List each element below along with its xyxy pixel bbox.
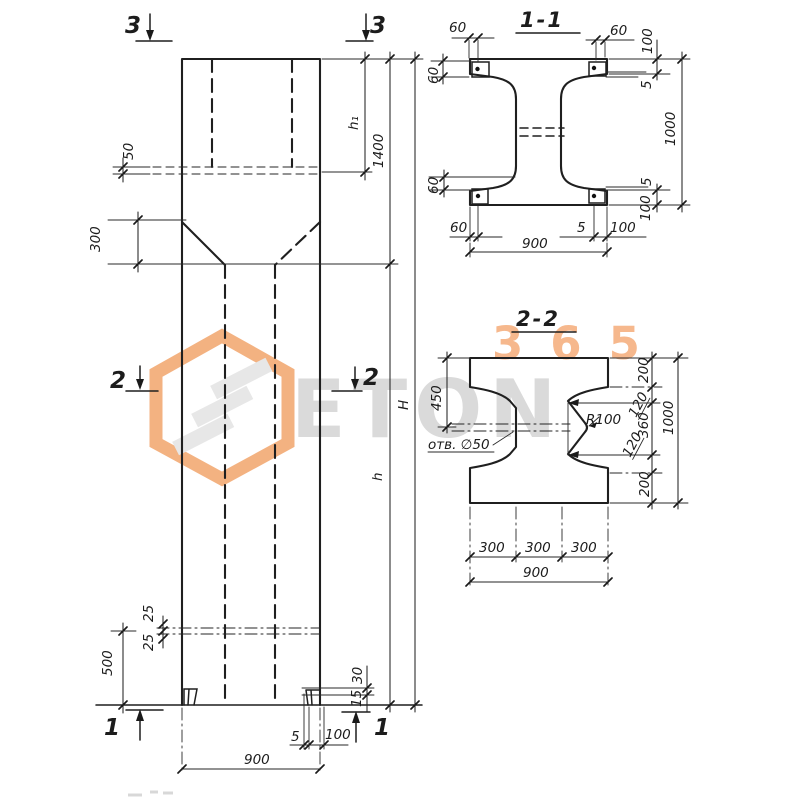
section-1-1-view: 1-1 60 60 100 5 1000 5 100 60 60 60 5 10… (426, 8, 690, 257)
watermark-hexagon-logo (156, 336, 288, 479)
s2-dim-200-bottom: 200 (637, 471, 653, 497)
dim-label-100: 100 (325, 727, 351, 743)
dim-label-25-upper: 25 (141, 605, 157, 622)
s1-dim-1000: 1000 (663, 112, 679, 146)
dim-label-500: 500 (100, 650, 116, 676)
s1-dim-900: 900 (522, 236, 548, 252)
s1-dim-5-top: 5 (639, 80, 655, 89)
svg-text:2: 2 (363, 365, 379, 391)
s2-hole-label: отв. ∅50 (428, 437, 490, 453)
svg-text:1: 1 (374, 715, 390, 741)
dim-label-15: 15 (349, 690, 365, 707)
s2-dim-1000: 1000 (661, 401, 677, 435)
s1-dim-60-left-bottom: 60 (426, 177, 442, 194)
dim-label-5: 5 (291, 729, 300, 745)
s2-dim-200-top: 200 (636, 357, 652, 383)
dim-label-h1: h₁ (346, 116, 362, 130)
dim-label-h: h (370, 472, 386, 481)
s2-radius-label: R100 (586, 412, 621, 428)
section-marker-3-right: 3 (346, 13, 386, 41)
dim-label-30: 30 (350, 667, 366, 684)
s1-dim-5-bottom: 5 (639, 177, 655, 186)
dim-label-50: 50 (121, 143, 137, 160)
section-marker-1-left: 1 (104, 709, 163, 741)
technical-drawing: ETON 365 50 300 h₁ 1400 H h 25 25 500 30… (0, 0, 800, 800)
s2-dim-900: 900 (523, 565, 549, 581)
s1-dim-60-left-top: 60 (426, 67, 442, 84)
s2-dim-450: 450 (429, 385, 445, 411)
s1-dim-60-bottom: 60 (450, 220, 467, 236)
s1-dim-100-bottom-edge: 100 (610, 220, 636, 236)
svg-text:3: 3 (370, 13, 386, 39)
dim-label-300: 300 (88, 226, 104, 252)
dim-label-1400: 1400 (371, 134, 387, 168)
s2-dim-300-b: 300 (525, 540, 551, 556)
svg-text:3: 3 (125, 13, 141, 39)
s2-dim-300-c: 300 (571, 540, 597, 556)
svg-text:2: 2 (110, 368, 126, 394)
s1-dim-60-top-left: 60 (449, 20, 466, 36)
drawing-page: ETON 365 50 300 h₁ 1400 H h 25 25 500 30… (0, 0, 800, 800)
section-marker-3-left: 3 (125, 13, 172, 41)
dim-label-H: H (396, 400, 412, 410)
s1-dim-5-bottom-bar: 5 (577, 220, 586, 236)
clipped-bottom-text-fragment (128, 792, 173, 795)
svg-text:1: 1 (104, 715, 120, 741)
s1-dim-60-top-right: 60 (610, 23, 627, 39)
section-2-2-title: 2-2 (516, 307, 560, 331)
dim-label-25-lower: 25 (141, 634, 157, 651)
s1-dim-100-top: 100 (640, 28, 656, 54)
dim-label-900: 900 (244, 752, 270, 768)
section-1-1-title: 1-1 (520, 8, 564, 32)
s1-dim-100-bottom: 100 (638, 195, 654, 221)
s2-dim-300-a: 300 (479, 540, 505, 556)
